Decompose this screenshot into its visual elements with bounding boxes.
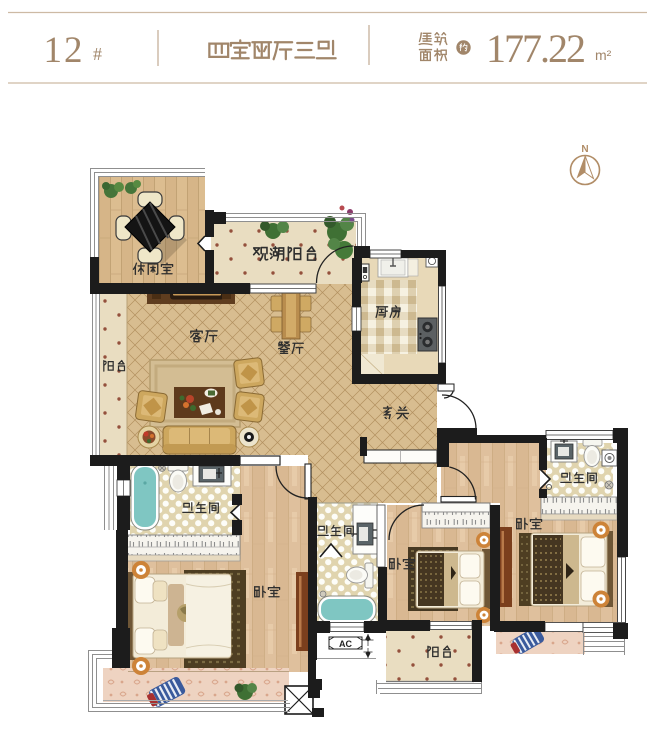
svg-text:N: N (581, 144, 588, 155)
svg-text:177.22: 177.22 (486, 26, 584, 71)
svg-text:#: # (93, 44, 102, 64)
svg-text:m²: m² (595, 47, 612, 63)
svg-text:12: 12 (44, 30, 85, 71)
svg-text:AC: AC (339, 639, 352, 649)
